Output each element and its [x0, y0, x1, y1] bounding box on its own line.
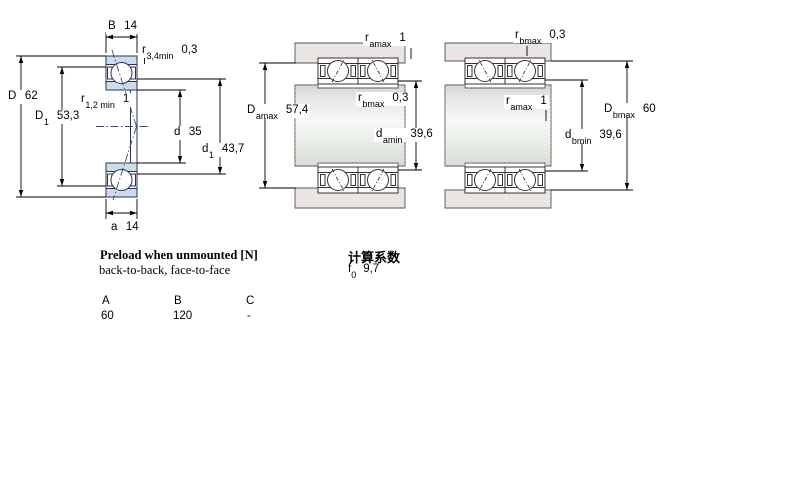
dim-label-Damax: Damax57,4: [245, 104, 310, 118]
dim-label-r12min: r1,2 min1: [79, 93, 131, 107]
dim-label-a: a14: [109, 221, 141, 235]
dim-label-d: d35: [172, 126, 204, 140]
preload-value-c: -: [247, 310, 251, 322]
dim-label-dbmin: dbmin39,6: [563, 129, 624, 143]
dim-label-B: B14: [106, 20, 139, 34]
face-to-face-mount-diagram: [445, 43, 633, 208]
dim-label-Dbmax: Dbmax60: [602, 103, 658, 117]
back-to-back-mount-diagram: [259, 43, 422, 208]
preload-value-b: 120: [173, 310, 192, 322]
dim-label-r34min: r3,4min0,3: [140, 44, 199, 58]
dim-label-D: D62: [6, 90, 40, 104]
dim-label-ramax-ftf: ramax1: [504, 95, 549, 109]
preload-col-header-b: B: [174, 295, 182, 307]
dim-label-rbmax-ftf: rbmax0,3: [513, 29, 567, 43]
preload-value-a: 60: [101, 310, 114, 322]
preload-col-header-a: A: [102, 295, 110, 307]
dim-label-damin: damin39,6: [374, 128, 435, 142]
dim-label-ramax-btb: ramax1: [363, 32, 408, 46]
preload-col-header-c: C: [246, 295, 254, 307]
dim-label-d1: d143,7: [200, 143, 246, 157]
dim-label-rbmax-btb: rbmax0,3: [356, 92, 410, 106]
preload-subtitle: back-to-back, face-to-face: [99, 263, 230, 278]
bearing-catalog-drawing-page: B14 r3,4min0,3 D62 D153,3 r1,2 min1 d35 …: [0, 0, 800, 500]
preload-title: Preload when unmounted [N]: [100, 248, 258, 263]
dim-label-D1: D153,3: [33, 110, 81, 124]
factor-f0: f09,7: [348, 263, 379, 277]
